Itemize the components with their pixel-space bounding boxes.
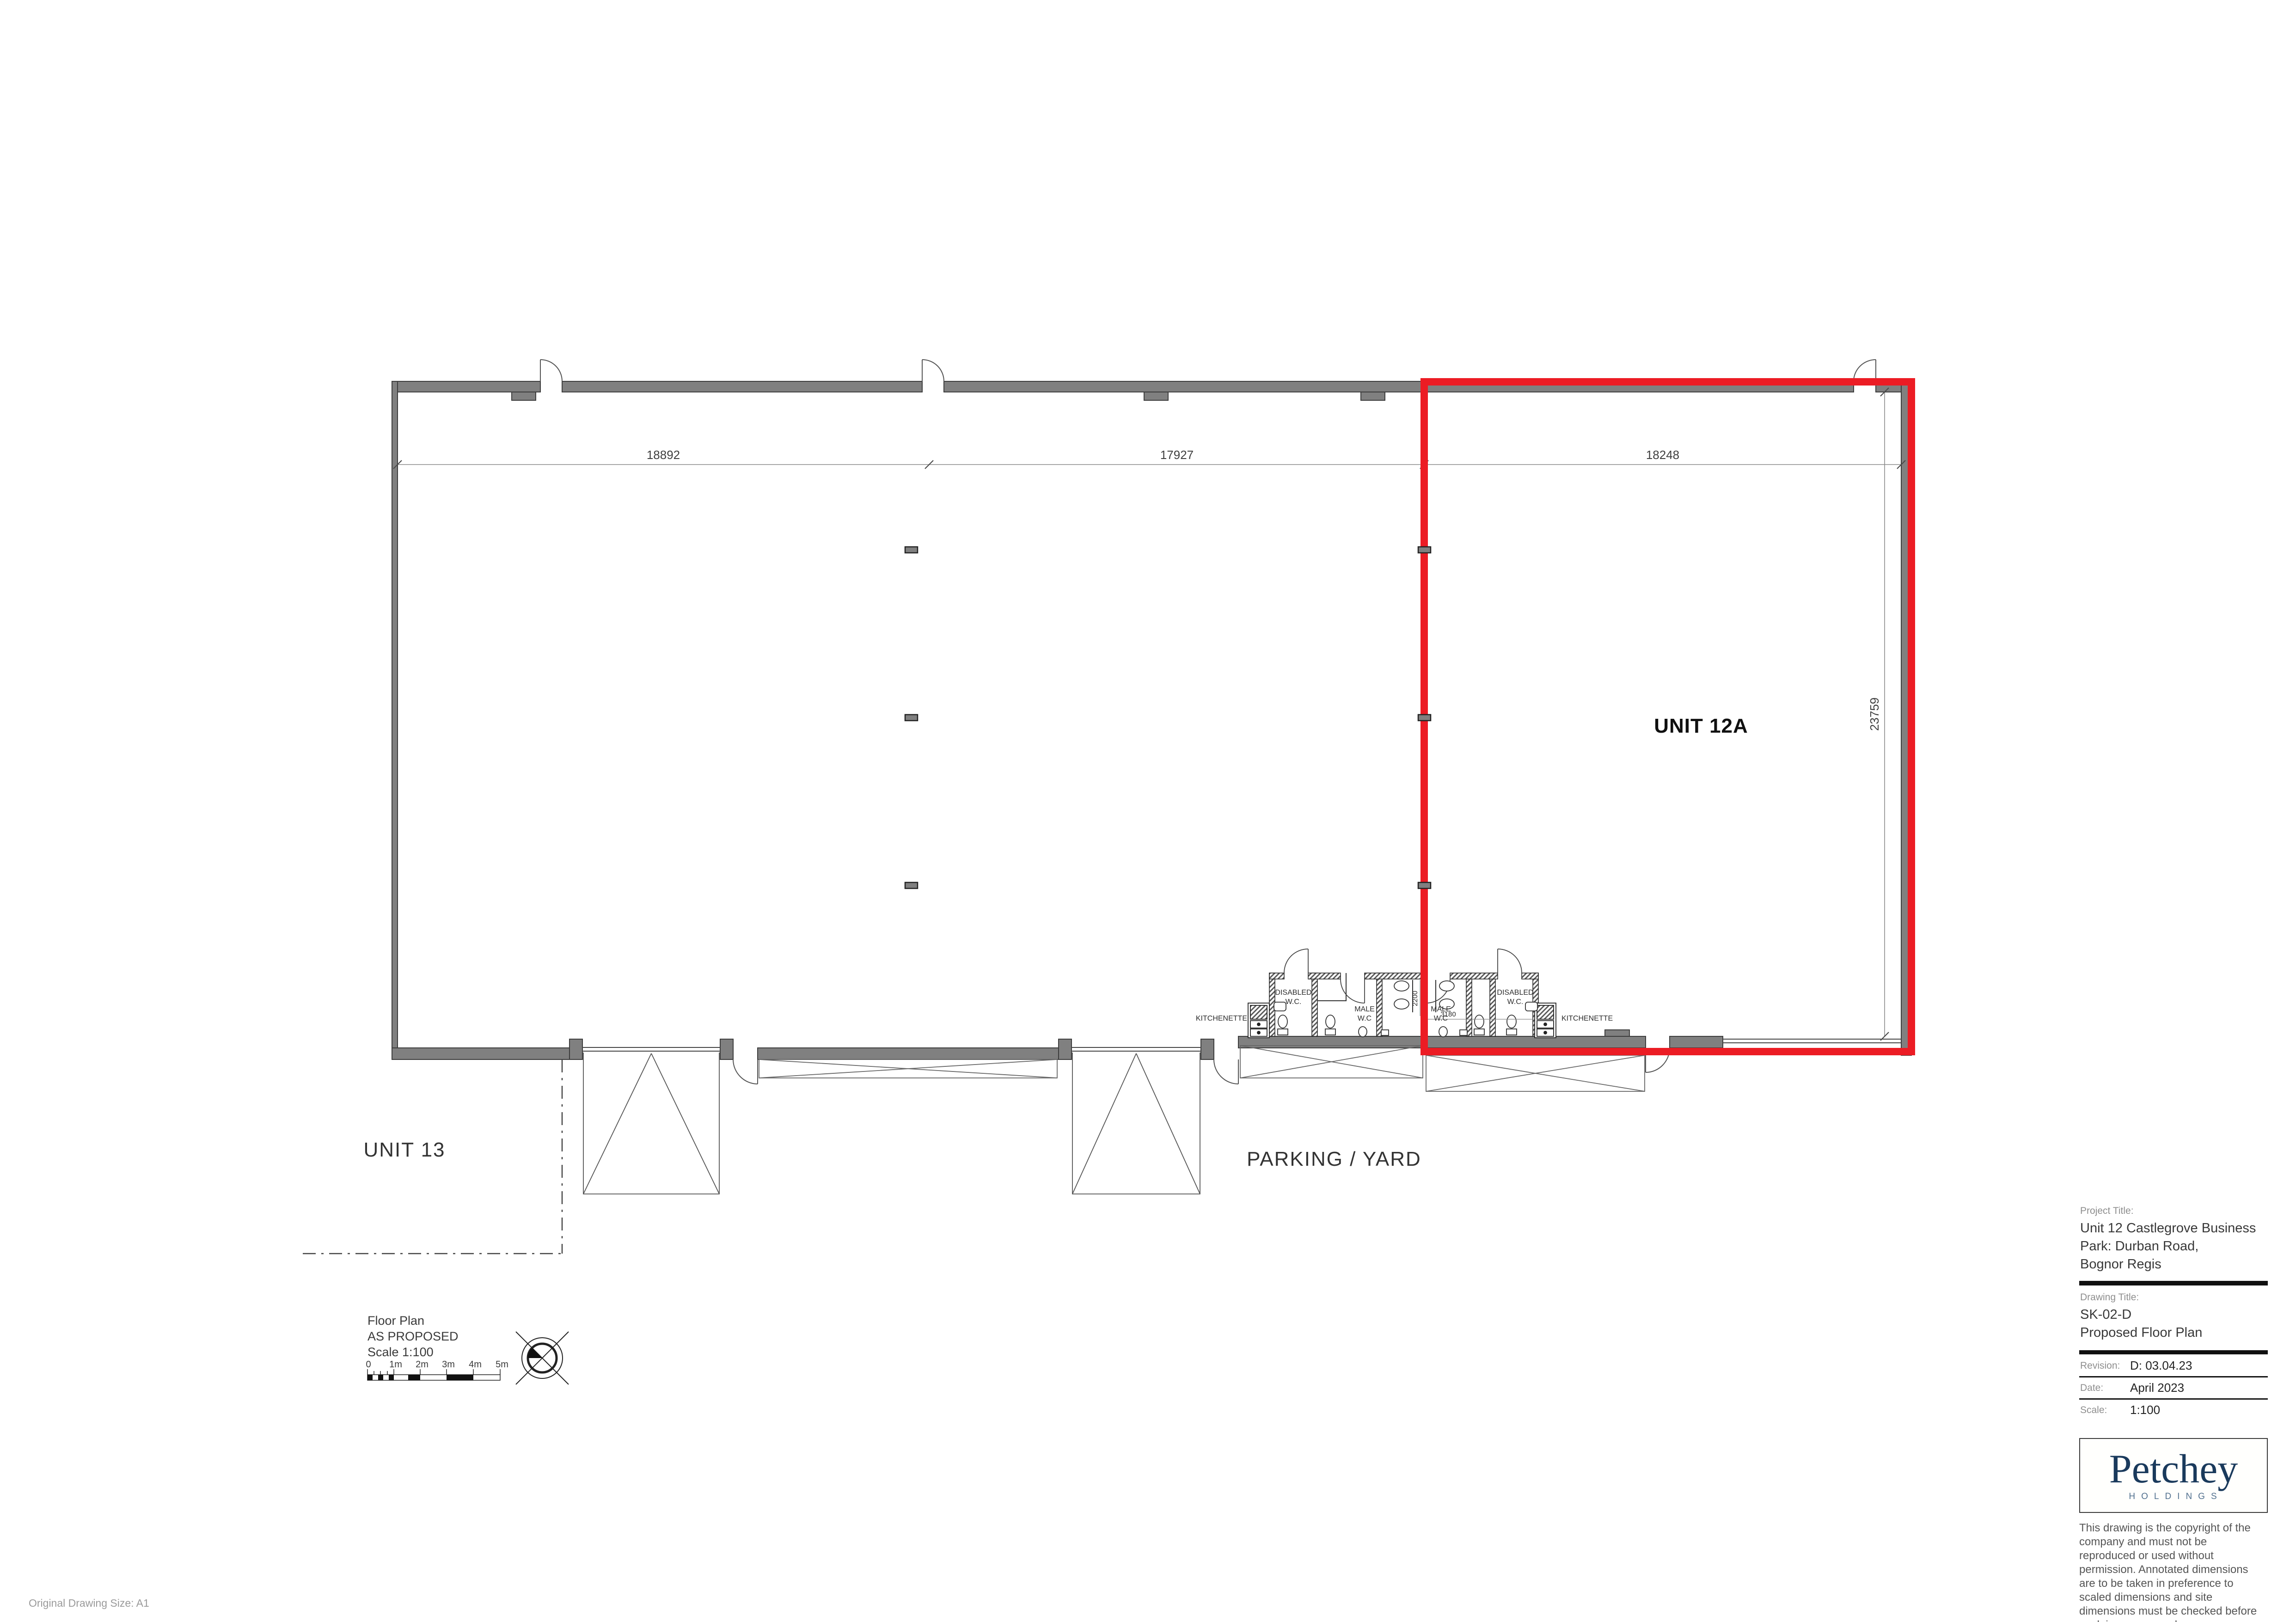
drawing-title-line: SK-02-D — [2080, 1306, 2268, 1324]
copyright-disclaimer: This drawing is the copyright of the com… — [2079, 1521, 2268, 1622]
disclaimer-line: This drawing is the copyright of the com… — [2079, 1521, 2268, 1549]
project-title-line: Bognor Regis — [2080, 1255, 2268, 1273]
north-arrow-icon — [516, 1332, 569, 1384]
project-title-label: Project Title: — [2080, 1206, 2268, 1217]
date-row: Date: April 2023 — [2079, 1377, 2268, 1400]
logo-wordmark: Petchey — [2109, 1449, 2238, 1490]
unit12a-label: UNIT 12A — [1654, 715, 1748, 737]
dim-top-left: 18892 — [647, 448, 680, 462]
divider-bar — [2079, 1281, 2268, 1285]
project-title-line: Park: Durban Road, — [2080, 1237, 2268, 1255]
scale-label: Scale: — [2080, 1405, 2130, 1416]
date-value: April 2023 — [2130, 1381, 2184, 1395]
dock-aprons — [583, 1053, 1200, 1194]
scale-tick-5: 5m — [496, 1359, 508, 1370]
dim-top-middle: 17927 — [1160, 448, 1194, 462]
floor-plan-canvas: 18892 17927 18248 23759 — [0, 0, 2296, 1622]
date-label: Date: — [2080, 1383, 2130, 1394]
scale-tick-3: 3m — [442, 1359, 455, 1370]
male-wc-right-label-1: MALE — [1431, 1005, 1451, 1013]
interior-columns — [905, 547, 918, 888]
scale-tick-1: 1m — [389, 1359, 402, 1370]
disabled-wc-left-label-2: W.C. — [1286, 998, 1302, 1006]
dim-right-side: 23759 — [1867, 698, 1881, 731]
disclaimer-line: reproduced or used without permission. A… — [2079, 1549, 2268, 1577]
scale-tick-0: 0 — [366, 1359, 371, 1370]
kitchenette-right-label: KITCHENETTE — [1561, 1015, 1613, 1022]
scale-row: Scale: 1:100 — [2079, 1400, 2268, 1420]
male-wc-left-label-1: MALE — [1354, 1005, 1375, 1013]
revision-row: Revision: D: 03.04.23 — [2079, 1355, 2268, 1377]
drawing-title-label: Drawing Title: — [2080, 1292, 2268, 1303]
dim-wc-depth: 2200 — [1411, 991, 1419, 1006]
dimension-lines: 18892 17927 18248 23759 — [393, 388, 1905, 1041]
male-wc-left-label-2: W.C — [1358, 1015, 1371, 1022]
top-doors — [540, 360, 1876, 381]
scale-tick-4: 4m — [469, 1359, 482, 1370]
unit12a-glazed-front — [1723, 1039, 1901, 1043]
drawing-title-line: Proposed Floor Plan — [2080, 1324, 2268, 1342]
disclaimer-line: are to be taken in preference to scaled … — [2079, 1577, 2268, 1604]
divider-bar — [2079, 1350, 2268, 1354]
revision-table: Revision: D: 03.04.23 Date: April 2023 S… — [2079, 1355, 2268, 1420]
male-wc-right-label-2: W.C — [1434, 1015, 1448, 1022]
unit13-label: UNIT 13 — [363, 1138, 445, 1161]
dim-top-right: 18248 — [1646, 448, 1679, 462]
scale-value: 1:100 — [2130, 1403, 2160, 1417]
disabled-wc-right-label-1: DISABLED — [1497, 989, 1533, 997]
drawing-sheet: 18892 17927 18248 23759 — [0, 0, 2296, 1622]
legend-title: Floor Plan — [367, 1314, 424, 1328]
petchey-logo: Petchey HOLDINGS — [2079, 1438, 2268, 1513]
wc-block: 2200 3180 DISABLED W.C. MALE W.C MALE W.… — [1196, 949, 1613, 1038]
revision-value: D: 03.04.23 — [2130, 1359, 2192, 1373]
original-size-note: Original Drawing Size: A1 — [29, 1597, 149, 1609]
disabled-wc-right-label-2: W.C. — [1507, 998, 1524, 1006]
disabled-wc-left-label-1: DISABLED — [1275, 989, 1311, 997]
logo-subtitle: HOLDINGS — [2129, 1492, 2223, 1502]
legend: Floor Plan AS PROPOSED Scale 1:100 0 1m … — [366, 1314, 569, 1384]
legend-scale: Scale 1:100 — [367, 1345, 434, 1359]
revision-label: Revision: — [2080, 1360, 2130, 1371]
parking-yard-label: PARKING / YARD — [1247, 1148, 1421, 1170]
disclaimer-line: dimensions must be checked before work i… — [2079, 1604, 2268, 1622]
title-block: Project Title: Unit 12 Castlegrove Busin… — [2079, 1206, 2268, 1622]
project-title-line: Unit 12 Castlegrove Business — [2080, 1219, 2268, 1237]
legend-status: AS PROPOSED — [367, 1329, 459, 1343]
kitchenette-left-label: KITCHENETTE — [1196, 1015, 1247, 1022]
scale-tick-2: 2m — [416, 1359, 429, 1370]
scale-bar: 0 1m 2m 3m 4m 5m — [366, 1359, 508, 1380]
